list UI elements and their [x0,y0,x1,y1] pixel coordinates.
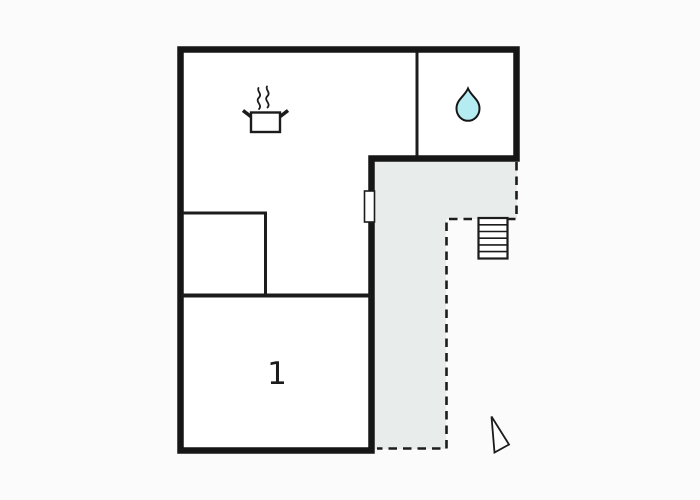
pot-body [251,113,280,133]
door-symbol [365,191,375,222]
floor-plan-page: 1 [0,0,700,500]
stairs-icon [479,218,508,259]
floor-plan: 1 [0,0,700,500]
room1-label: 1 [267,356,287,392]
